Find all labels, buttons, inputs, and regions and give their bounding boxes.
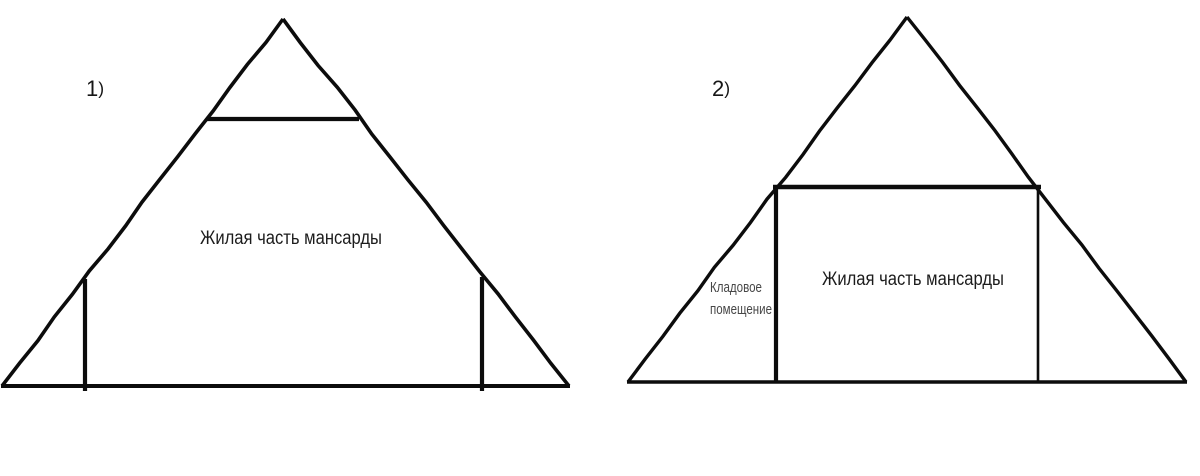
- svg-text:Кладовое: Кладовое: [710, 279, 762, 296]
- svg-text:1): 1): [86, 76, 104, 101]
- svg-text:2): 2): [712, 76, 730, 101]
- svg-text:Жилая часть мансарды: Жилая часть мансарды: [822, 269, 1004, 290]
- svg-text:помещение: помещение: [710, 301, 772, 318]
- svg-text:Жилая часть мансарды: Жилая часть мансарды: [200, 228, 382, 249]
